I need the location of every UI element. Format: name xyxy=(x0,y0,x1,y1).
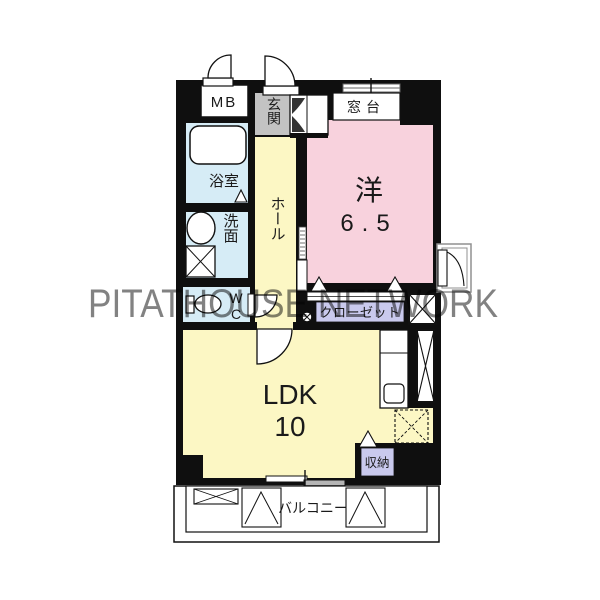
bath-label: 浴室 xyxy=(209,173,239,190)
watermark-text: PITATHOUSE NETWORK xyxy=(88,282,498,326)
mb-door-leaf xyxy=(203,78,233,86)
floorplan-canvas: MB 窓台 クローゼット xyxy=(0,0,600,600)
wash-label: 洗面 xyxy=(222,213,239,243)
hall-label: ホール xyxy=(269,196,286,241)
balcony-label: バルコニー xyxy=(278,500,348,516)
exterior-door-leaf xyxy=(438,250,447,286)
sliding-door-hatch xyxy=(300,231,305,255)
wall-corner-block xyxy=(400,87,433,125)
western-label: 洋 xyxy=(355,175,383,206)
floorplan-svg: MB 窓台 クローゼット xyxy=(0,0,600,600)
mb-door-arc-icon xyxy=(208,55,231,78)
balcony-window-rail xyxy=(304,480,345,486)
western-size-label: 6.5 xyxy=(340,210,397,237)
entrance-door-arc-icon xyxy=(265,56,295,86)
entrance-door-leaf xyxy=(263,86,299,95)
sink-icon xyxy=(187,212,215,244)
storage-label: 収納 xyxy=(364,456,389,470)
ldk-size-label: 10 xyxy=(274,411,305,442)
balcony-window-rail xyxy=(266,476,307,482)
genkan-label: 玄関 xyxy=(266,96,282,126)
madodai-label: 窓台 xyxy=(347,99,385,115)
kitchen-sink-icon xyxy=(384,384,404,403)
mb-label: MB xyxy=(211,94,238,111)
ldk-label: LDK xyxy=(263,379,318,410)
wall-under-cabinet xyxy=(290,133,328,138)
bathtub-icon xyxy=(190,126,246,164)
